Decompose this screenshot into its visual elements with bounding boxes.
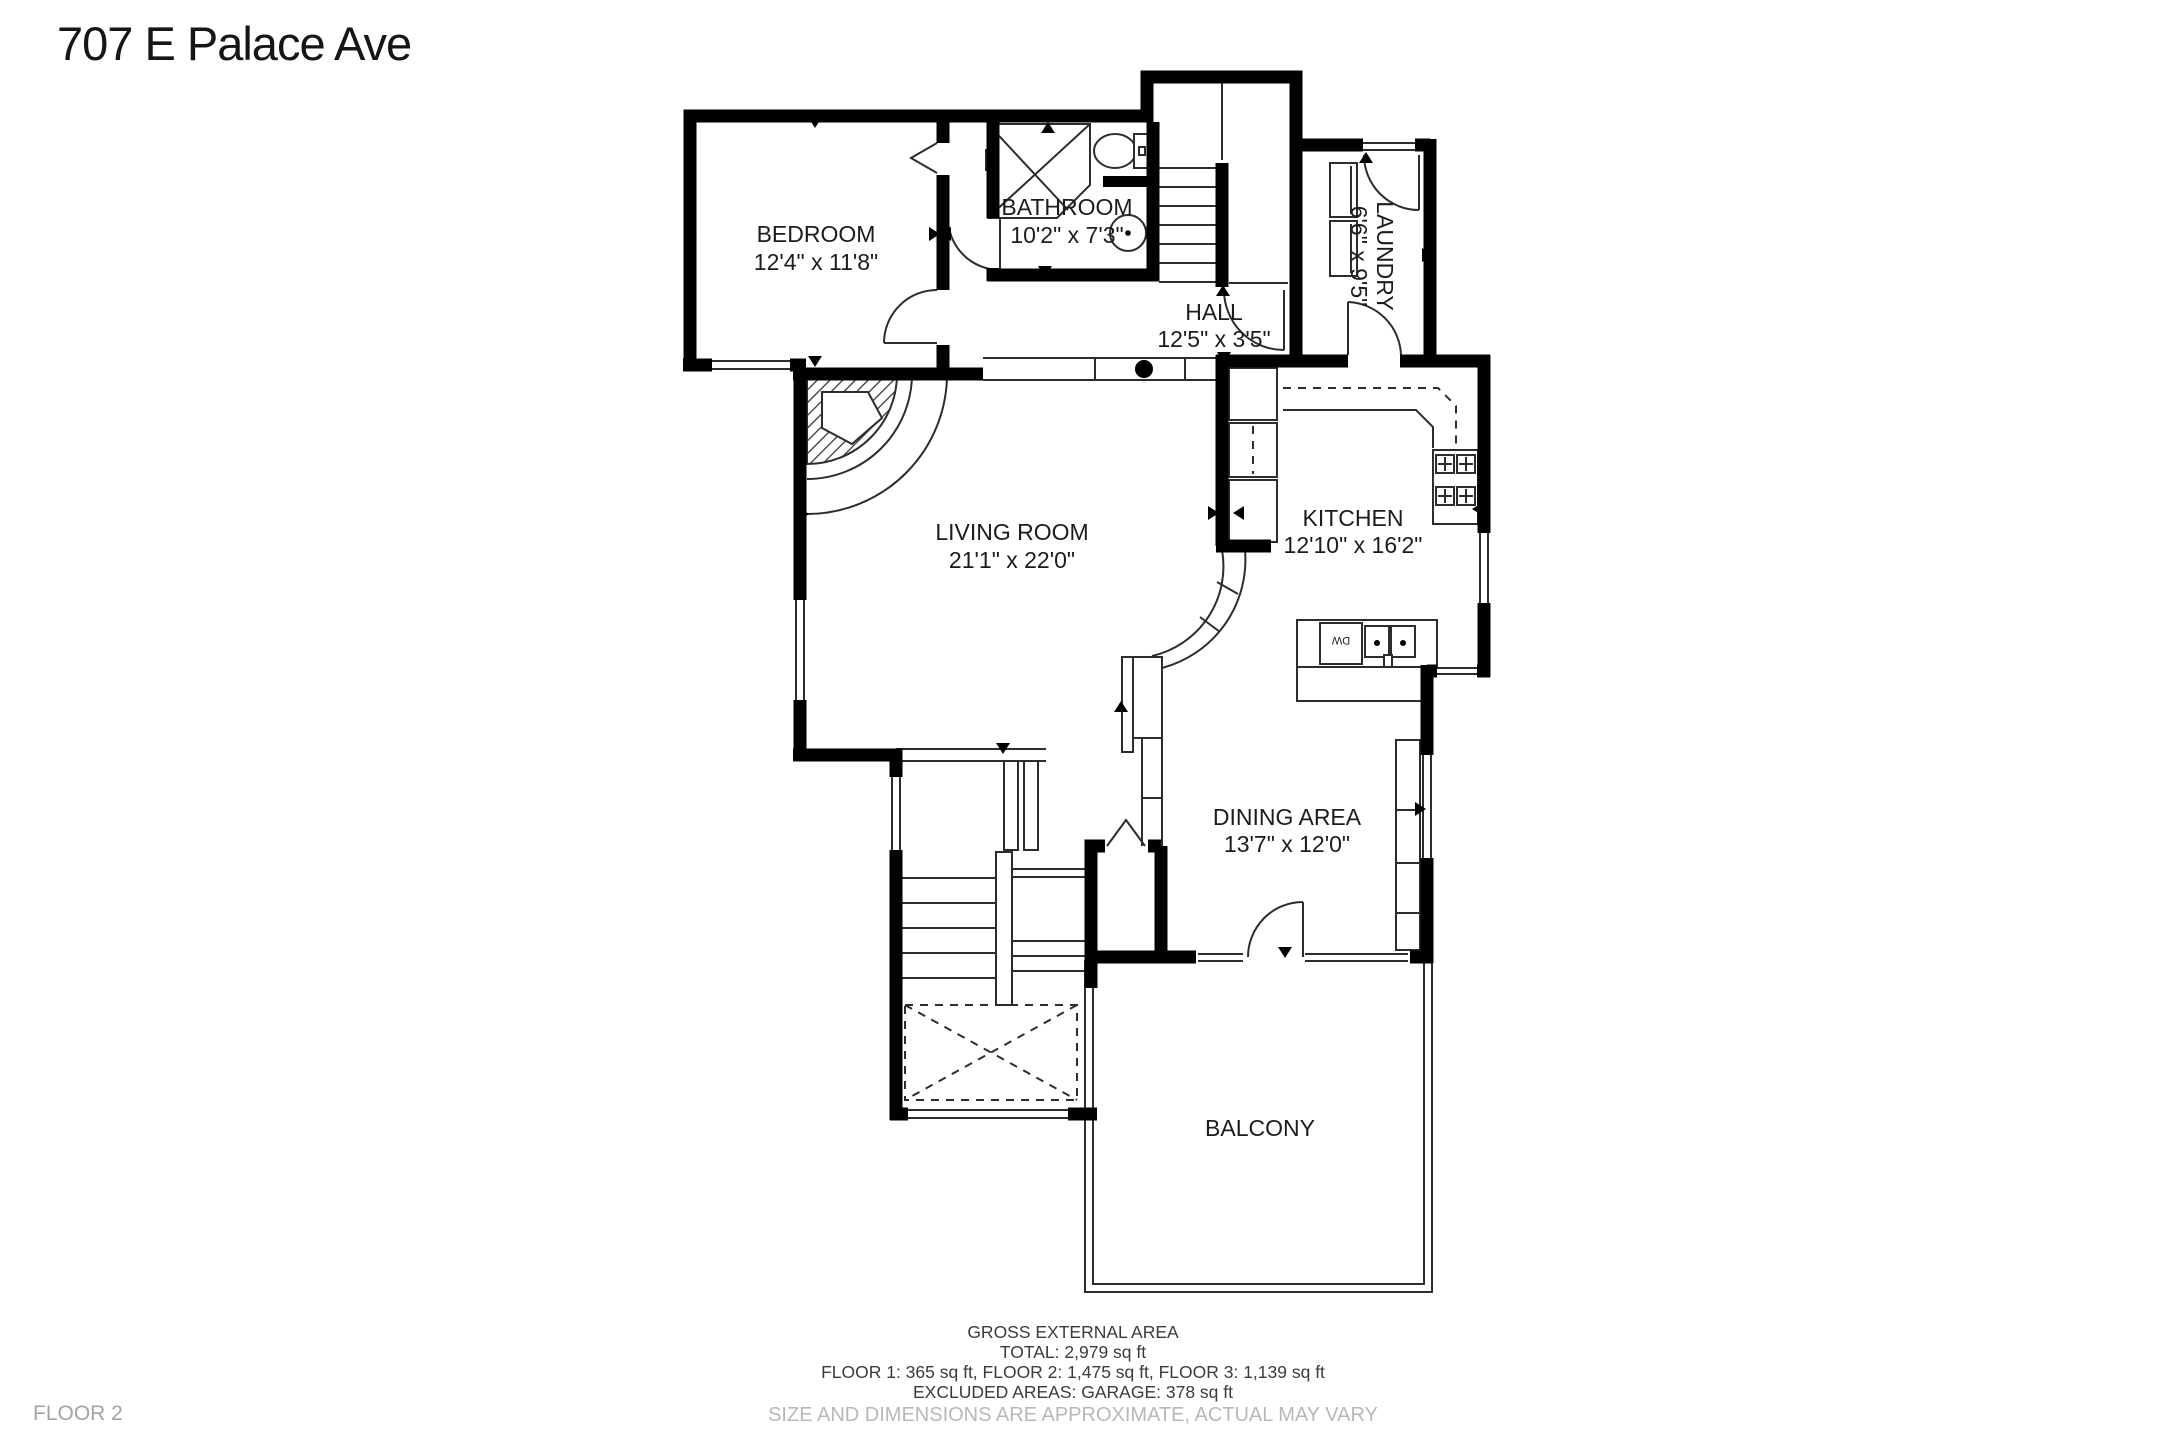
curved-wall [1122, 550, 1245, 846]
svg-text:LIVING ROOM: LIVING ROOM [935, 519, 1088, 545]
svg-text:13'7" x 12'0": 13'7" x 12'0" [1224, 831, 1350, 857]
dishwasher-label: DW [1331, 634, 1350, 646]
page-title: 707 E Palace Ave [57, 17, 411, 70]
svg-text:KITCHEN: KITCHEN [1303, 505, 1404, 531]
svg-text:6'6" x 9'5": 6'6" x 9'5" [1346, 206, 1372, 307]
svg-text:10'2" x 7'3": 10'2" x 7'3" [1010, 222, 1123, 248]
footer-disclaimer: SIZE AND DIMENSIONS ARE APPROXIMATE, ACT… [768, 1404, 1378, 1426]
room-label-dining: DINING AREA 13'7" x 12'0" [1213, 804, 1362, 857]
toilet-icon [1094, 134, 1150, 168]
svg-text:12'5" x 3'5": 12'5" x 3'5" [1157, 326, 1270, 352]
bathroom-door [948, 218, 1000, 270]
floorplan-canvas: DW [0, 0, 2173, 1448]
svg-text:LAUNDRY: LAUNDRY [1372, 201, 1398, 311]
svg-text:DINING AREA: DINING AREA [1213, 804, 1362, 830]
pantry-cabinets [1229, 368, 1277, 542]
room-label-bathroom: BATHROOM 10'2" x 7'3" [1001, 194, 1132, 248]
svg-text:BATHROOM: BATHROOM [1001, 194, 1132, 220]
room-label-kitchen: KITCHEN 12'10" x 16'2" [1284, 505, 1423, 558]
fireplace-icon [807, 374, 947, 514]
room-label-laundry: LAUNDRY 6'6" x 9'5" [1346, 201, 1398, 311]
room-label-bedroom: BEDROOM 12'4" x 11'8" [754, 221, 878, 275]
svg-text:BEDROOM: BEDROOM [757, 221, 876, 247]
patio-door [1248, 902, 1303, 957]
floor-label: FLOOR 2 [33, 1402, 123, 1425]
hall-step [983, 358, 1216, 380]
room-label-hall: HALL 12'5" x 3'5" [1157, 299, 1270, 352]
svg-text:HALL: HALL [1185, 299, 1243, 325]
footer-line-2: TOTAL: 2,979 sq ft [1000, 1342, 1146, 1362]
room-label-balcony: BALCONY [1205, 1115, 1315, 1141]
stairs-lower [896, 749, 1086, 1005]
svg-text:21'1" x 22'0": 21'1" x 22'0" [949, 547, 1075, 573]
kitchen-sink-counter: DW [1297, 620, 1437, 701]
dining-cabinet [1396, 740, 1420, 950]
floorplan-page: DW [0, 0, 2173, 1448]
footer-line-1: GROSS EXTERNAL AREA [967, 1322, 1179, 1342]
kitchen-counter [1283, 388, 1456, 450]
footer-line-4: EXCLUDED AREAS: GARAGE: 378 sq ft [913, 1382, 1233, 1402]
svg-text:12'10" x 16'2": 12'10" x 16'2" [1284, 532, 1423, 558]
footer-block: GROSS EXTERNAL AREA TOTAL: 2,979 sq ft F… [768, 1322, 1378, 1426]
labels-layer: 707 E Palace Ave BEDROOM 12'4" x 11'8" B… [33, 17, 1422, 1426]
void-open-below [905, 1005, 1077, 1100]
svg-text:12'4" x 11'8": 12'4" x 11'8" [754, 249, 878, 275]
room-label-living: LIVING ROOM 21'1" x 22'0" [935, 519, 1088, 573]
bedroom-door [884, 290, 937, 343]
stove-icon [1433, 450, 1478, 524]
bedroom-closet-door-icon [911, 143, 937, 173]
footer-line-3: FLOOR 1: 365 sq ft, FLOOR 2: 1,475 sq ft… [821, 1362, 1325, 1382]
closet-door-icon [1107, 820, 1145, 846]
